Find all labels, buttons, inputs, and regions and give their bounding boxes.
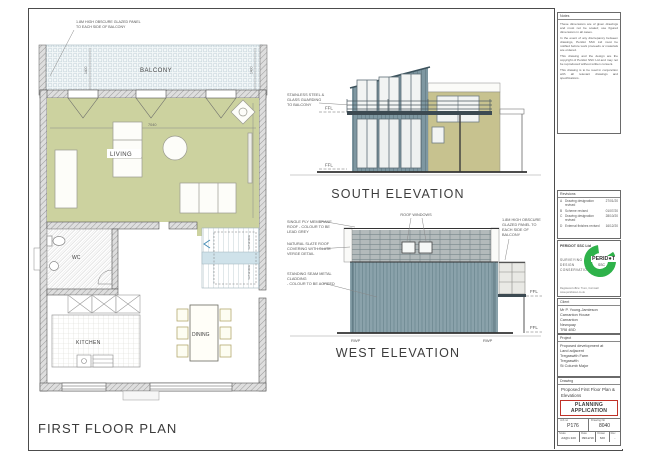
glazed-note-line1: 1.8M HIGH OBSCURE xyxy=(502,218,541,222)
balcony-slab xyxy=(347,111,492,115)
revision-desc: Scheme revised xyxy=(565,209,604,213)
scale-date-table: Scale A3@1:100 Date 09/12/19 Drawn MO Re… xyxy=(558,431,620,442)
firm-contact-line: www.peridotssc.co.uk xyxy=(560,291,618,294)
job-no-cell: Job no P176 xyxy=(558,419,589,431)
wc-label: WC xyxy=(72,255,81,261)
project-line: St Columb Major xyxy=(560,364,618,369)
rev-value: - xyxy=(611,435,619,441)
notes-box: Notes These dimensions are of given draw… xyxy=(557,12,621,134)
balcony-wall-right xyxy=(260,45,267,95)
client-box: Client Mr P. Young-Jamieson Carnanton Ho… xyxy=(557,298,621,334)
balcony-note-line2: TO EACH SIDE OF BALCONY xyxy=(76,25,126,29)
revision-date: 16/12/20 xyxy=(606,224,618,228)
drawing-no-cell: Drawing No 8040 xyxy=(589,419,620,431)
notes-paragraph: In the event of any discrepancy between … xyxy=(560,36,618,52)
revision-row: B Scheme revised 01/07/20 xyxy=(558,207,620,212)
glazed-note-leader xyxy=(505,239,509,260)
scale-cell: Scale A3@1:100 xyxy=(558,432,580,442)
kitchen-label: KITCHEN xyxy=(76,340,101,346)
wc-wall-bottom xyxy=(47,289,118,295)
verge-right xyxy=(491,228,499,262)
balcony-dim-right: 1400 xyxy=(250,66,254,74)
revision-desc: External finishes revised xyxy=(565,224,604,228)
balcony-label: BALCONY xyxy=(140,68,172,74)
revision-date: 27/01/20 xyxy=(606,199,618,207)
wall-right-lower xyxy=(259,298,266,391)
living-label: LIVING xyxy=(110,152,132,158)
notes-header: Notes xyxy=(558,13,620,20)
window-lower-right xyxy=(432,127,444,143)
wall-right-upper xyxy=(259,90,266,290)
balcony-dim-left: 1400 xyxy=(84,66,88,74)
dining-label: DINING xyxy=(192,332,210,338)
client-header: Client xyxy=(558,299,620,306)
guarding-note-line3: TO BALCONY xyxy=(287,103,312,107)
verge-left xyxy=(344,228,352,262)
roof-window-1 xyxy=(402,242,415,253)
wc-wall-right xyxy=(112,229,118,289)
glazed-doors-lower xyxy=(357,119,421,168)
south-elevation: FFL FFL STAINLESS STEEL & GLASS GUARDING… xyxy=(285,55,547,207)
client-line: TR8 4BD xyxy=(560,328,618,333)
revisions-header: Revisions xyxy=(558,191,620,198)
drawing-no-value: 8040 xyxy=(591,422,618,430)
membrane-note-line2: ROOF - COLOUR TO BE xyxy=(287,225,330,229)
balcony-wall-left xyxy=(39,45,46,95)
ffl-lower-label: FFL xyxy=(325,163,333,168)
guarding-note-line2: GLASS GUARDING xyxy=(287,98,321,102)
drawn-value: MO xyxy=(597,435,607,441)
cladding-note-line2: CLADDING xyxy=(287,277,307,281)
stair-note-1: roof window xyxy=(247,234,251,250)
west-elevation: ROOF WINDOWS FFL FFL RWP RWP SINGLE PLY … xyxy=(285,205,547,365)
revision-row: D External finishes revised 16/12/20 xyxy=(558,222,620,227)
revision-row: C Drawing designation revised 28/10/20 xyxy=(558,213,620,222)
cladding-note-line1: STANDING SEAM METAL xyxy=(287,272,332,276)
date-value: 09/12/19 xyxy=(581,435,594,441)
logo-subtext: SSC xyxy=(597,263,606,267)
revision-row: A Drawing designation revised 27/01/20 xyxy=(558,198,620,207)
rwp-left-label: RWP xyxy=(351,338,361,343)
parapet-fascia xyxy=(428,83,500,92)
roof-window-2 xyxy=(419,242,432,253)
revision-date: 01/07/20 xyxy=(606,209,618,213)
glazed-note-line4: BALCONY xyxy=(502,233,521,237)
slate-note-line3: VERGE DETAIL xyxy=(287,252,314,256)
balcony-note-line1: 1.8M HIGH OBSCURE GLAZED PANEL xyxy=(76,20,141,24)
canopy xyxy=(500,109,524,114)
scale-value: A3@1:100 xyxy=(559,435,578,441)
title-block: Notes These dimensions are of given draw… xyxy=(554,8,623,449)
south-elevation-title: SOUTH ELEVATION xyxy=(331,187,465,201)
glazed-note-line3: EACH SIDE OF xyxy=(502,228,529,232)
roof-windows-label: ROOF WINDOWS xyxy=(400,213,432,217)
ffl-lower-west: FFL xyxy=(530,325,538,330)
project-box: Project Proposed development at Land adj… xyxy=(557,334,621,377)
project-address: Proposed development at Land adjacent Tr… xyxy=(558,342,620,371)
membrane-note-line3: LEAD GREY xyxy=(287,230,309,234)
peridot-logo-icon xyxy=(582,243,618,281)
ffl-upper-label: FFL xyxy=(325,106,333,111)
rwp-right-label: RWP xyxy=(483,338,493,343)
guarding-note-leader xyxy=(319,103,351,105)
revision-date: 28/10/20 xyxy=(606,214,618,222)
revision-desc: Drawing designation revised xyxy=(565,214,604,222)
drawing-box: Drawing Proposed First Floor Plan & Elev… xyxy=(557,377,621,446)
glazed-note-line2: GLAZED PANEL TO xyxy=(502,223,537,227)
drawn-cell: Drawn MO xyxy=(596,432,609,442)
project-header: Project xyxy=(558,335,620,342)
stair-note-2: roof window xyxy=(247,264,251,280)
logo-wordmark: PERID●T xyxy=(591,256,616,262)
slate-note-line2: COVERING WITH SLATE xyxy=(287,247,331,251)
wall-left xyxy=(40,90,47,391)
job-no-value: P176 xyxy=(560,422,586,430)
wall-recess xyxy=(34,248,40,270)
windows-upper xyxy=(357,74,421,111)
notes-paragraph: These dimensions are of given drawings a… xyxy=(560,22,618,34)
planning-application-stamp: PLANNING APPLICATION xyxy=(560,400,618,416)
west-elevation-title: WEST ELEVATION xyxy=(336,346,460,360)
notes-paragraph: This drawing and the design are the copy… xyxy=(560,54,618,66)
plan-title: FIRST FLOOR PLAN xyxy=(38,421,177,436)
wall-internal-horizontal xyxy=(47,222,159,229)
firm-contact: Registered office: Truro, Cornwall www.p… xyxy=(560,287,618,294)
living-dim-width: 7040 xyxy=(148,123,156,127)
firm-box: PERIDOT SSC Ltd SURVEYING DESIGN CONSERV… xyxy=(557,240,621,297)
job-number-table: Job no P176 Drawing No 8040 xyxy=(558,418,620,431)
drawing-title: Proposed First Floor Plan & Elevations xyxy=(558,385,620,399)
ffl-upper-west: FFL xyxy=(530,289,538,294)
slate-note-line1: NATURAL SLATE ROOF xyxy=(287,242,330,246)
kitchen-sink xyxy=(77,355,113,367)
revision-desc: Drawing designation revised xyxy=(565,199,604,207)
first-floor-plan: BALCONY 1.8M HIGH OBSCURE GLAZED PANEL T… xyxy=(28,8,298,450)
drawing-header: Drawing xyxy=(558,378,620,385)
guarding-note-line1: STAINLESS STEEL & xyxy=(287,93,325,97)
date-cell: Date 09/12/19 xyxy=(580,432,596,442)
stair-landing xyxy=(202,252,259,264)
balcony-slab-west xyxy=(498,294,526,297)
drawing-sheet: BALCONY 1.8M HIGH OBSCURE GLAZED PANEL T… xyxy=(0,0,650,459)
rev-cell: Rev - xyxy=(610,432,620,442)
revisions-box: Revisions A Drawing designation revised … xyxy=(557,190,621,239)
external-step xyxy=(123,391,159,400)
client-address: Mr P. Young-Jamieson Carnanton House Car… xyxy=(558,306,620,334)
kitchen-units xyxy=(68,295,140,313)
notes-paragraph: This drawing is to be read in conjunctio… xyxy=(560,68,618,80)
